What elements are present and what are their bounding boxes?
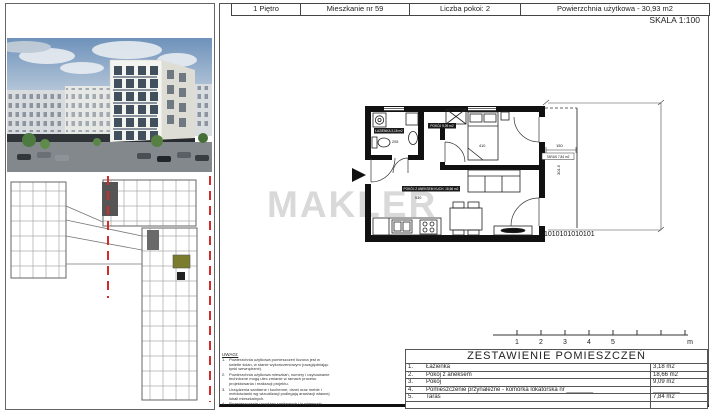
header-apartment: Mieszkanie nr 59 [300,4,409,15]
dining-table-icon [450,202,482,235]
table-row: 1. Łazienka 3,18 m2 [406,364,708,372]
notes-block: UWAGI: 1. Powierzchnia użytkowa pomieszc… [222,352,332,408]
header-floor: 1 Piętro [232,4,300,15]
hall-dim: 205 [392,140,398,144]
terrace-height-dim: 301.5 [556,164,561,175]
scale-label: SKALA 1:100 [560,15,700,25]
terrace-width-dim: 150 [556,143,563,148]
plan-sheet-page: 1 Piętro Mieszkanie nr 59 Liczba pokoi: … [0,0,710,410]
table-row [406,401,708,409]
cabinet-icon [406,113,418,125]
sink-icon [409,132,418,145]
building-photo [7,38,212,172]
table-row: 2. Pokój z aneksem 18,66 m2 [406,371,708,379]
svg-text:1: 1 [515,339,519,346]
summary-title: ZESTAWIENIE POMIESZCZEŃ [406,350,708,364]
nightstand-icon [501,112,509,120]
scale-bar: 1 2 3 4 5 m [488,326,698,348]
table-row: 4. Pomieszczenie przynależne - komórka l… [406,386,708,394]
main-building [110,60,195,148]
note-item: 3. Urządzenia sanitarne i kuchenne, drzw… [222,388,332,402]
room-label-bedroom: POKÓJ 9,09 m2 [430,123,453,128]
note-item: 4. Rozmieszczenie urządzeń sanitarnych i… [222,402,332,407]
svg-text:4: 4 [587,339,591,346]
svg-text:5: 5 [611,339,615,346]
bedroom-dim: 410 [479,144,485,148]
tv-bench-icon [494,226,532,235]
table-row: 5. Taras 7,84 m2 [406,394,708,402]
highlighted-apartment [173,255,190,268]
overview-floorplan [7,176,213,406]
svg-text:3: 3 [563,339,567,346]
room-label-living: POKÓJ Z ANEKSEM KUCH. 18,66 m2 [404,186,459,191]
dimension-lines [543,100,664,232]
living-furniture [373,170,532,235]
stove-icon [420,220,437,234]
room-label-bathroom: ŁAZIENKA 3,18 m2 [375,129,403,133]
header-area: Powierzchnia użytkowa - 30,93 m2 [520,4,709,15]
terrace: 1010101010101 150 301.5 [544,108,595,238]
sofa-icon [468,170,520,192]
room-label-terrace: TARAS 7,84 m2 [547,155,570,159]
header-rooms: Liczba pokoi: 2 [409,4,520,15]
note-item: 1. Powierzchnia użytkowa pomieszczeń lic… [222,358,332,372]
scale-tick-labels: 1 2 3 4 5 m [515,339,693,346]
scale-unit: m [687,339,693,346]
building-wings [11,180,197,400]
railing-pattern: 1010101010101 [544,231,595,238]
toilet-icon [372,137,377,148]
scale-ticks [517,330,685,335]
table-row: 3. Pokój 9,09 m2 [406,379,708,387]
apartment-floorplan: 1010101010101 150 301.5 205 410 530 ŁAZI… [348,88,692,254]
living-dim: 530 [415,196,421,200]
note-item: 2. Powierzchnia użytkowa mieszkań, numer… [222,373,332,387]
bed-icon [468,112,498,160]
room-summary-table: ZESTAWIENIE POMIESZCZEŃ 1. Łazienka 3,18… [405,349,708,409]
kitchen-counter-icon [373,218,441,235]
svg-text:2: 2 [539,339,543,346]
left-panel [5,3,215,410]
bedroom-furniture [446,109,509,160]
entrance-arrow-icon [352,168,366,182]
